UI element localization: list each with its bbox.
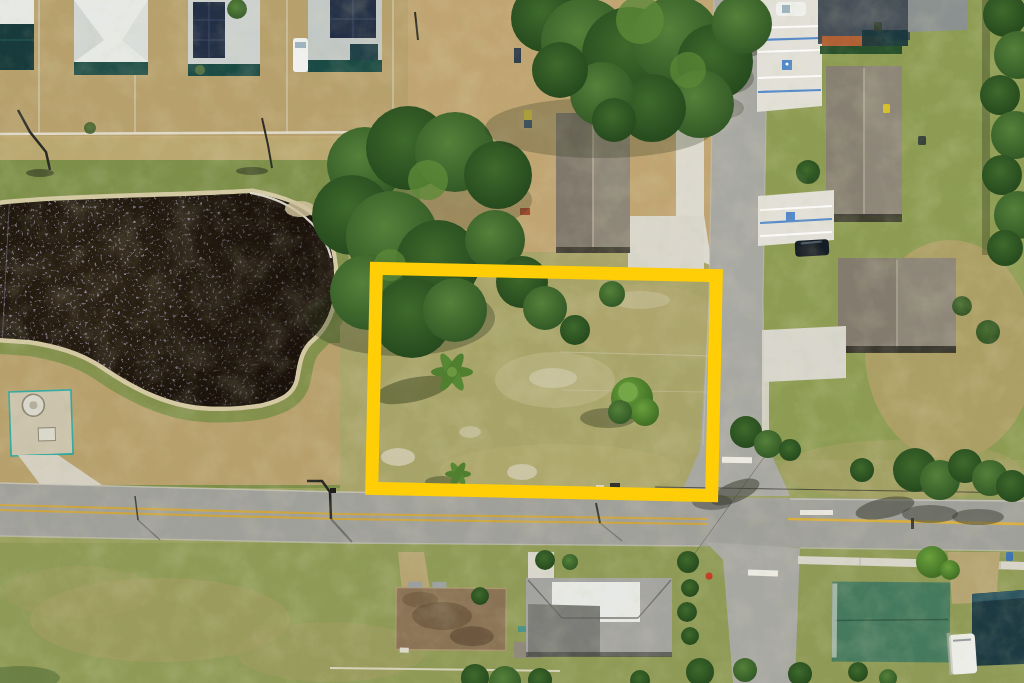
aerial-scene [0,0,1024,683]
aerial-photo [0,0,1024,683]
